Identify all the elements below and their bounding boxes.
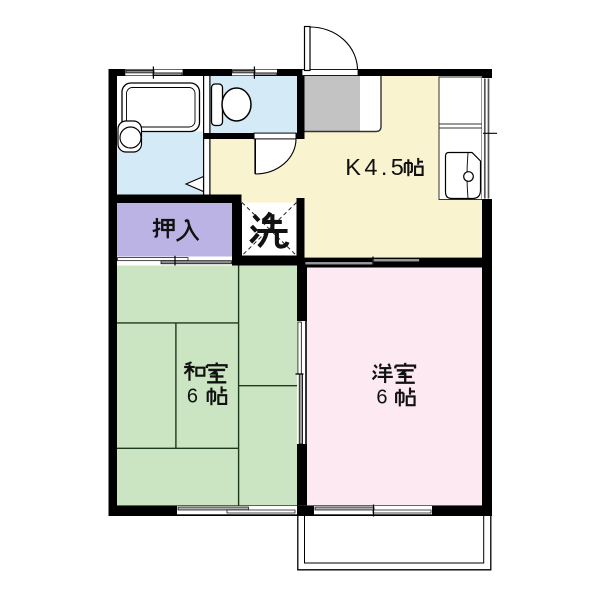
- svg-text:6: 6: [187, 386, 198, 408]
- svg-text:6: 6: [376, 387, 387, 409]
- svg-text:K4.5: K4.5: [345, 154, 407, 180]
